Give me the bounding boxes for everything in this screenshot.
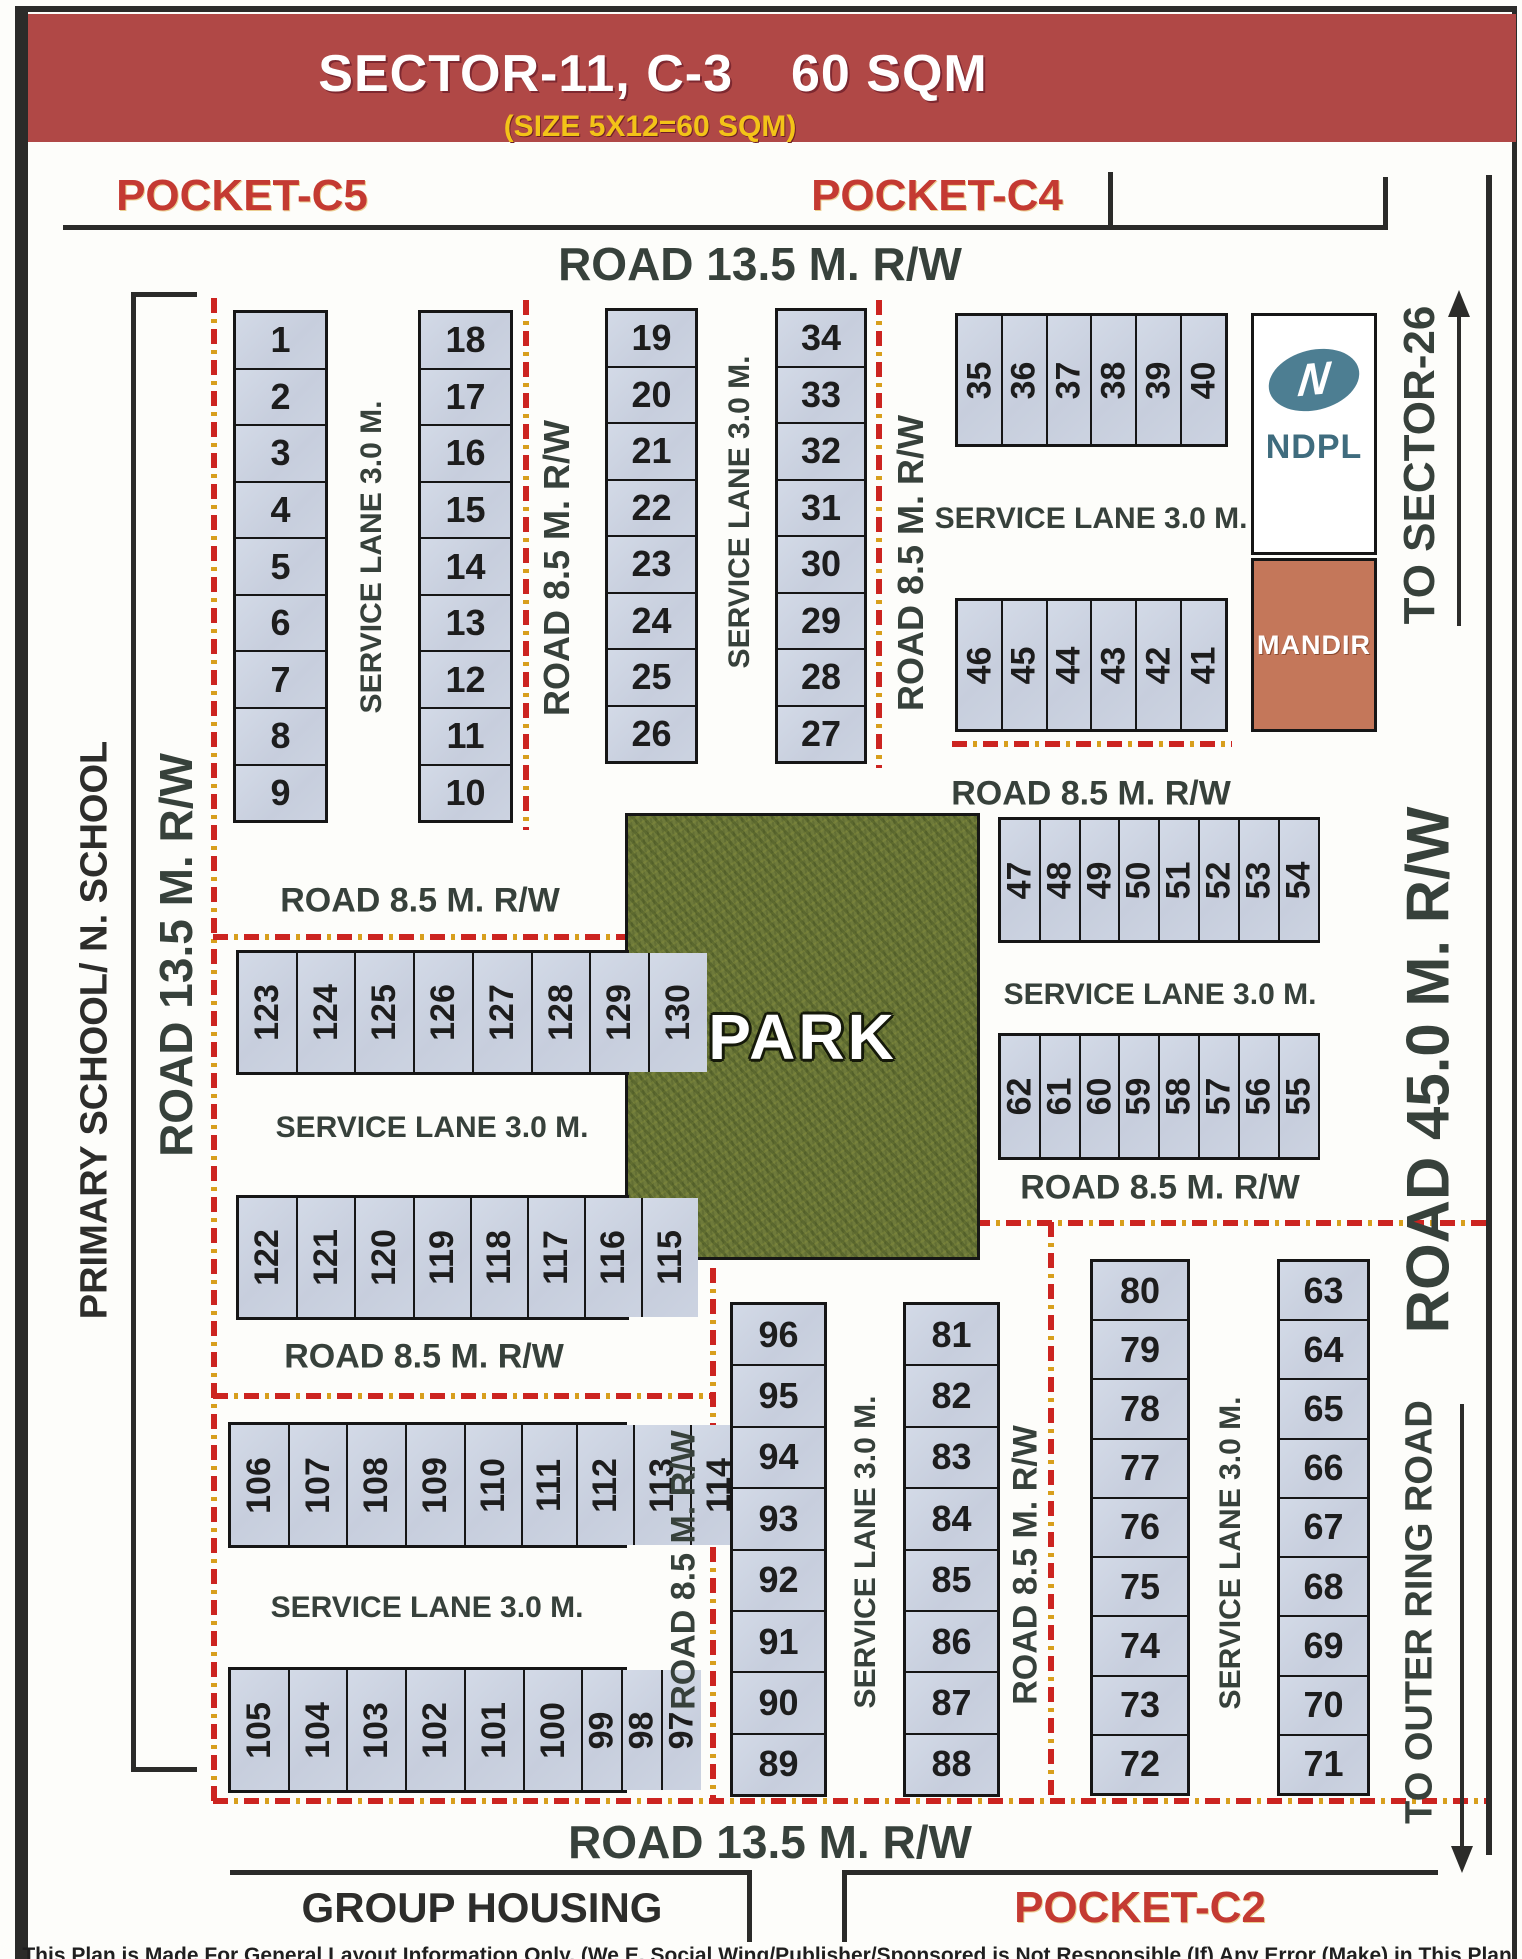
ndpl-plot: N NDPL bbox=[1251, 313, 1377, 555]
plot-cell-30: 30 bbox=[778, 535, 864, 592]
plot-cell-29: 29 bbox=[778, 592, 864, 649]
title-sector: SECTOR-11, C-3 bbox=[318, 45, 733, 103]
plot-cell-119: 119 bbox=[413, 1198, 470, 1317]
plot-block-62-55: 6261605958575655 bbox=[998, 1033, 1320, 1160]
road-8-5-label-f1: ROAD 8.5 M. R/W bbox=[665, 1430, 704, 1710]
plot-cell-82: 82 bbox=[906, 1364, 997, 1425]
school-bracket-tick-top bbox=[131, 292, 197, 297]
service-lane-label-e2: SERVICE LANE 3.0 M. bbox=[271, 1591, 584, 1625]
road-8-5-label-a: ROAD 8.5 M. R/W bbox=[536, 420, 578, 716]
plot-cell-68: 68 bbox=[1280, 1556, 1367, 1615]
plot-cell-52: 52 bbox=[1198, 820, 1238, 940]
plot-cell-23: 23 bbox=[608, 535, 695, 592]
top-bracket-line bbox=[63, 225, 1388, 230]
plot-cell-90: 90 bbox=[733, 1671, 824, 1732]
red-line-bottom bbox=[213, 1798, 1490, 1804]
plot-cell-53: 53 bbox=[1238, 820, 1278, 940]
plot-cell-112: 112 bbox=[576, 1425, 633, 1545]
plot-block-105-97: 105104103102101100999897 bbox=[228, 1667, 627, 1793]
ndpl-logo-letter: N bbox=[1295, 352, 1332, 408]
plot-cell-78: 78 bbox=[1093, 1378, 1187, 1437]
ndpl-logo-icon: N bbox=[1262, 340, 1366, 420]
plot-cell-37: 37 bbox=[1046, 316, 1091, 444]
layout-plan-page: SECTOR-11, C-360 SQM (SIZE 5X12=60 SQM) … bbox=[0, 0, 1522, 1959]
plot-block-34-27: 3433323130292827 bbox=[775, 308, 867, 764]
plot-cell-108: 108 bbox=[346, 1425, 405, 1545]
plot-block-47-54: 4748495051525354 bbox=[998, 817, 1320, 943]
plot-cell-76: 76 bbox=[1093, 1497, 1187, 1556]
plot-block-122-115: 122121120119118117116115 bbox=[236, 1195, 629, 1320]
plot-cell-122: 122 bbox=[239, 1198, 296, 1317]
road-8-5-label-e1: ROAD 8.5 M. R/W bbox=[280, 882, 560, 921]
plot-cell-11: 11 bbox=[421, 707, 510, 764]
plot-cell-123: 123 bbox=[239, 953, 296, 1072]
plot-cell-63: 63 bbox=[1280, 1262, 1367, 1319]
road-8-5-label-e2: ROAD 8.5 M. R/W bbox=[284, 1338, 564, 1377]
plot-cell-115: 115 bbox=[641, 1198, 698, 1317]
plot-cell-72: 72 bbox=[1093, 1734, 1187, 1793]
plot-cell-1: 1 bbox=[236, 313, 325, 368]
road-13-5-label-bottom: ROAD 13.5 M. R/W bbox=[568, 1815, 972, 1869]
red-line-right-bottom bbox=[1048, 1222, 1054, 1800]
top-bracket-tick-mid bbox=[1108, 172, 1113, 230]
plot-cell-79: 79 bbox=[1093, 1319, 1187, 1378]
plot-cell-74: 74 bbox=[1093, 1615, 1187, 1674]
to-outer-ring-arrow-icon bbox=[1451, 1846, 1473, 1873]
plot-cell-120: 120 bbox=[354, 1198, 413, 1317]
page-border-top bbox=[15, 6, 1515, 12]
page-border-right bbox=[1512, 6, 1517, 1959]
plot-cell-104: 104 bbox=[288, 1670, 347, 1790]
plot-cell-38: 38 bbox=[1090, 316, 1135, 444]
plot-cell-118: 118 bbox=[470, 1198, 527, 1317]
plot-cell-101: 101 bbox=[464, 1670, 523, 1790]
plot-cell-65: 65 bbox=[1280, 1378, 1367, 1437]
plot-cell-73: 73 bbox=[1093, 1675, 1187, 1734]
service-lane-label-f1: SERVICE LANE 3.0 M. bbox=[849, 1396, 883, 1709]
plot-cell-117: 117 bbox=[527, 1198, 584, 1317]
service-lane-label-b: SERVICE LANE 3.0 M. bbox=[723, 356, 757, 669]
plot-block-80-72: 807978777675747372 bbox=[1090, 1259, 1190, 1796]
plot-cell-87: 87 bbox=[906, 1671, 997, 1732]
plot-cell-100: 100 bbox=[523, 1670, 582, 1790]
plot-cell-55: 55 bbox=[1278, 1036, 1318, 1157]
plot-cell-41: 41 bbox=[1180, 601, 1225, 729]
plot-cell-2: 2 bbox=[236, 368, 325, 425]
road-45-label: ROAD 45.0 M. R/W bbox=[1394, 807, 1463, 1334]
plot-cell-44: 44 bbox=[1046, 601, 1091, 729]
plot-block-46-41: 464544434241 bbox=[955, 598, 1228, 732]
plot-block-81-88: 8182838485868788 bbox=[903, 1302, 1000, 1797]
plot-cell-45: 45 bbox=[1001, 601, 1046, 729]
plot-cell-93: 93 bbox=[733, 1487, 824, 1548]
road-8-5-label-c: ROAD 8.5 M. R/W bbox=[951, 775, 1231, 814]
plot-cell-7: 7 bbox=[236, 650, 325, 707]
plot-cell-4: 4 bbox=[236, 481, 325, 538]
red-line-above-123 bbox=[213, 934, 625, 940]
plot-cell-105: 105 bbox=[231, 1670, 288, 1790]
plot-cell-50: 50 bbox=[1118, 820, 1158, 940]
park-label: PARK bbox=[708, 1000, 897, 1074]
plot-cell-26: 26 bbox=[608, 705, 695, 762]
plot-cell-103: 103 bbox=[346, 1670, 405, 1790]
plot-cell-129: 129 bbox=[589, 953, 648, 1072]
plan-right-border bbox=[1486, 175, 1492, 1855]
plot-cell-17: 17 bbox=[421, 368, 510, 425]
plot-cell-24: 24 bbox=[608, 592, 695, 649]
plot-cell-60: 60 bbox=[1079, 1036, 1119, 1157]
plot-cell-111: 111 bbox=[521, 1425, 576, 1545]
pocket-c2-bracket-tick bbox=[842, 1870, 847, 1942]
plot-cell-126: 126 bbox=[413, 953, 472, 1072]
plot-cell-109: 109 bbox=[405, 1425, 464, 1545]
plot-cell-116: 116 bbox=[584, 1198, 641, 1317]
red-line-above-106 bbox=[213, 1393, 712, 1399]
plot-block-35-40: 353637383940 bbox=[955, 313, 1228, 447]
plot-cell-42: 42 bbox=[1135, 601, 1180, 729]
plot-cell-130: 130 bbox=[648, 953, 707, 1072]
plot-cell-80: 80 bbox=[1093, 1262, 1187, 1319]
plot-cell-15: 15 bbox=[421, 481, 510, 538]
plot-cell-18: 18 bbox=[421, 313, 510, 368]
red-line-col-b bbox=[876, 300, 882, 768]
plot-cell-43: 43 bbox=[1090, 601, 1135, 729]
road-13-5-label-left: ROAD 13.5 M. R/W bbox=[149, 753, 203, 1157]
plot-cell-19: 19 bbox=[608, 311, 695, 366]
plot-cell-16: 16 bbox=[421, 424, 510, 481]
pocket-c2-label: POCKET-C2 bbox=[1014, 1883, 1266, 1933]
plot-block-63-71: 636465666768697071 bbox=[1277, 1259, 1370, 1796]
plot-cell-35: 35 bbox=[958, 316, 1001, 444]
plot-cell-33: 33 bbox=[778, 366, 864, 423]
plot-cell-58: 58 bbox=[1158, 1036, 1198, 1157]
red-line-under-41-46 bbox=[952, 741, 1232, 747]
plot-cell-99: 99 bbox=[581, 1670, 621, 1790]
school-bracket-tick-bottom bbox=[131, 1767, 197, 1772]
plot-cell-89: 89 bbox=[733, 1733, 824, 1794]
plot-cell-124: 124 bbox=[296, 953, 355, 1072]
plot-block-18-10: 181716151413121110 bbox=[418, 310, 513, 823]
plot-cell-85: 85 bbox=[906, 1549, 997, 1610]
service-lane-label-f2: SERVICE LANE 3.0 M. bbox=[1214, 1397, 1248, 1710]
plot-cell-13: 13 bbox=[421, 594, 510, 651]
plot-cell-54: 54 bbox=[1278, 820, 1318, 940]
plot-block-19-26: 1920212223242526 bbox=[605, 308, 698, 764]
plot-cell-84: 84 bbox=[906, 1487, 997, 1548]
plot-cell-125: 125 bbox=[354, 953, 413, 1072]
mandir-label: MANDIR bbox=[1257, 630, 1371, 661]
service-lane-label-c: SERVICE LANE 3.0 M. bbox=[935, 502, 1248, 536]
plot-block-96-89: 9695949392919089 bbox=[730, 1302, 827, 1797]
plot-cell-21: 21 bbox=[608, 422, 695, 479]
plot-cell-14: 14 bbox=[421, 537, 510, 594]
title-size: 60 SQM bbox=[791, 45, 988, 103]
top-bracket-tick-right bbox=[1383, 177, 1388, 230]
to-outer-ring-arrow-shaft bbox=[1460, 1404, 1464, 1848]
page-title: SECTOR-11, C-360 SQM bbox=[318, 44, 987, 104]
mandir-plot: MANDIR bbox=[1251, 558, 1377, 732]
service-lane-label-d: SERVICE LANE 3.0 M. bbox=[1004, 978, 1317, 1012]
plot-cell-61: 61 bbox=[1039, 1036, 1079, 1157]
pocket-c4-label: POCKET-C4 bbox=[811, 171, 1063, 221]
plot-cell-95: 95 bbox=[733, 1364, 824, 1425]
plot-block-123-130: 123124125126127128129130 bbox=[236, 950, 629, 1075]
ndpl-label: NDPL bbox=[1266, 428, 1363, 467]
plot-cell-86: 86 bbox=[906, 1610, 997, 1671]
to-sector-26-arrow-icon bbox=[1448, 290, 1470, 317]
disclaimer-text: This Plan is Made For General Layout Inf… bbox=[22, 1944, 1517, 1959]
group-housing-bracket-tick bbox=[747, 1870, 752, 1942]
plot-cell-48: 48 bbox=[1039, 820, 1079, 940]
plot-cell-94: 94 bbox=[733, 1426, 824, 1487]
road-13-5-label-top: ROAD 13.5 M. R/W bbox=[558, 237, 962, 291]
to-sector-26-label: TO SECTOR-26 bbox=[1395, 306, 1445, 625]
plot-cell-127: 127 bbox=[472, 953, 531, 1072]
plot-cell-71: 71 bbox=[1280, 1734, 1367, 1793]
plot-cell-88: 88 bbox=[906, 1733, 997, 1794]
page-border-left bbox=[15, 6, 28, 1959]
road-8-5-label-d: ROAD 8.5 M. R/W bbox=[1020, 1169, 1300, 1208]
plot-cell-27: 27 bbox=[778, 705, 864, 762]
plot-cell-40: 40 bbox=[1180, 316, 1225, 444]
plot-cell-81: 81 bbox=[906, 1305, 997, 1364]
plot-cell-46: 46 bbox=[958, 601, 1001, 729]
plot-block-1-9: 123456789 bbox=[233, 310, 328, 823]
plot-cell-22: 22 bbox=[608, 479, 695, 536]
plot-cell-56: 56 bbox=[1238, 1036, 1278, 1157]
plot-cell-47: 47 bbox=[1001, 820, 1039, 940]
primary-school-label: PRIMARY SCHOOL/ N. SCHOOL bbox=[74, 741, 117, 1319]
plot-cell-6: 6 bbox=[236, 594, 325, 651]
plot-cell-20: 20 bbox=[608, 366, 695, 423]
plot-cell-49: 49 bbox=[1079, 820, 1119, 940]
plot-cell-31: 31 bbox=[778, 479, 864, 536]
school-bracket-line bbox=[131, 292, 136, 1772]
to-outer-ring-road-label: TO OUTER RING ROAD bbox=[1399, 1400, 1442, 1824]
plot-cell-36: 36 bbox=[1001, 316, 1046, 444]
plot-cell-12: 12 bbox=[421, 650, 510, 707]
road-8-5-label-f2: ROAD 8.5 M. R/W bbox=[1007, 1425, 1046, 1705]
plot-cell-110: 110 bbox=[464, 1425, 521, 1545]
plot-cell-83: 83 bbox=[906, 1426, 997, 1487]
plot-cell-64: 64 bbox=[1280, 1319, 1367, 1378]
plot-cell-62: 62 bbox=[1001, 1036, 1039, 1157]
plot-cell-51: 51 bbox=[1158, 820, 1198, 940]
page-subtitle: (SIZE 5X12=60 SQM) bbox=[504, 110, 797, 144]
plot-cell-3: 3 bbox=[236, 424, 325, 481]
plot-cell-57: 57 bbox=[1198, 1036, 1238, 1157]
plot-cell-92: 92 bbox=[733, 1549, 824, 1610]
plot-cell-70: 70 bbox=[1280, 1675, 1367, 1734]
red-line-col-a bbox=[523, 300, 529, 830]
plot-cell-77: 77 bbox=[1093, 1438, 1187, 1497]
plot-cell-75: 75 bbox=[1093, 1556, 1187, 1615]
plot-cell-10: 10 bbox=[421, 764, 510, 821]
plot-cell-102: 102 bbox=[405, 1670, 464, 1790]
title-banner: SECTOR-11, C-360 SQM (SIZE 5X12=60 SQM) bbox=[28, 14, 1516, 142]
service-lane-label-e1: SERVICE LANE 3.0 M. bbox=[276, 1111, 589, 1145]
pocket-c2-bracket-line bbox=[842, 1870, 1438, 1875]
to-sector-26-arrow-shaft bbox=[1457, 316, 1461, 626]
plot-cell-106: 106 bbox=[231, 1425, 288, 1545]
plot-cell-34: 34 bbox=[778, 311, 864, 366]
red-line-left bbox=[211, 298, 217, 1802]
plot-cell-8: 8 bbox=[236, 707, 325, 764]
plot-cell-25: 25 bbox=[608, 648, 695, 705]
group-housing-label: GROUP HOUSING bbox=[302, 1884, 663, 1932]
plot-cell-66: 66 bbox=[1280, 1438, 1367, 1497]
group-housing-bracket-line bbox=[230, 1870, 752, 1875]
plot-cell-5: 5 bbox=[236, 537, 325, 594]
service-lane-label-a: SERVICE LANE 3.0 M. bbox=[355, 401, 389, 714]
plot-cell-67: 67 bbox=[1280, 1497, 1367, 1556]
road-8-5-label-b: ROAD 8.5 M. R/W bbox=[890, 415, 932, 711]
plot-cell-32: 32 bbox=[778, 422, 864, 479]
plot-cell-9: 9 bbox=[236, 764, 325, 821]
plot-cell-98: 98 bbox=[621, 1670, 661, 1790]
plot-cell-128: 128 bbox=[531, 953, 590, 1072]
pocket-c5-label: POCKET-C5 bbox=[116, 171, 368, 221]
plot-cell-96: 96 bbox=[733, 1305, 824, 1364]
plot-cell-59: 59 bbox=[1118, 1036, 1158, 1157]
plot-cell-28: 28 bbox=[778, 648, 864, 705]
plot-cell-91: 91 bbox=[733, 1610, 824, 1671]
plot-cell-69: 69 bbox=[1280, 1615, 1367, 1674]
plot-block-106-114: 106107108109110111112113114 bbox=[228, 1422, 627, 1548]
plot-cell-121: 121 bbox=[296, 1198, 355, 1317]
plot-cell-39: 39 bbox=[1135, 316, 1180, 444]
plot-cell-107: 107 bbox=[288, 1425, 347, 1545]
